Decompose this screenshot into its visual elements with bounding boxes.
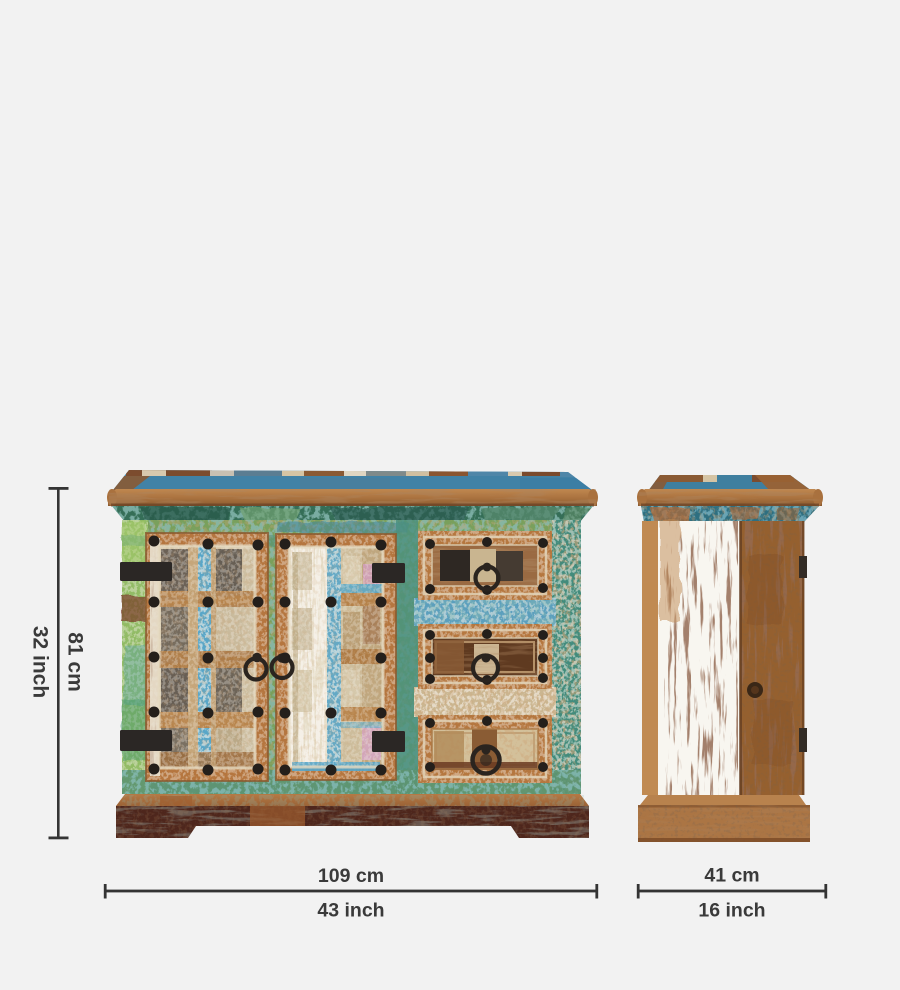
svg-text:16 inch: 16 inch xyxy=(698,900,765,922)
svg-text:32 inch: 32 inch xyxy=(29,626,52,698)
svg-text:81 cm: 81 cm xyxy=(64,632,87,692)
svg-text:109 cm: 109 cm xyxy=(318,865,384,887)
svg-text:41 cm: 41 cm xyxy=(704,865,759,887)
svg-text:43 inch: 43 inch xyxy=(317,900,384,922)
